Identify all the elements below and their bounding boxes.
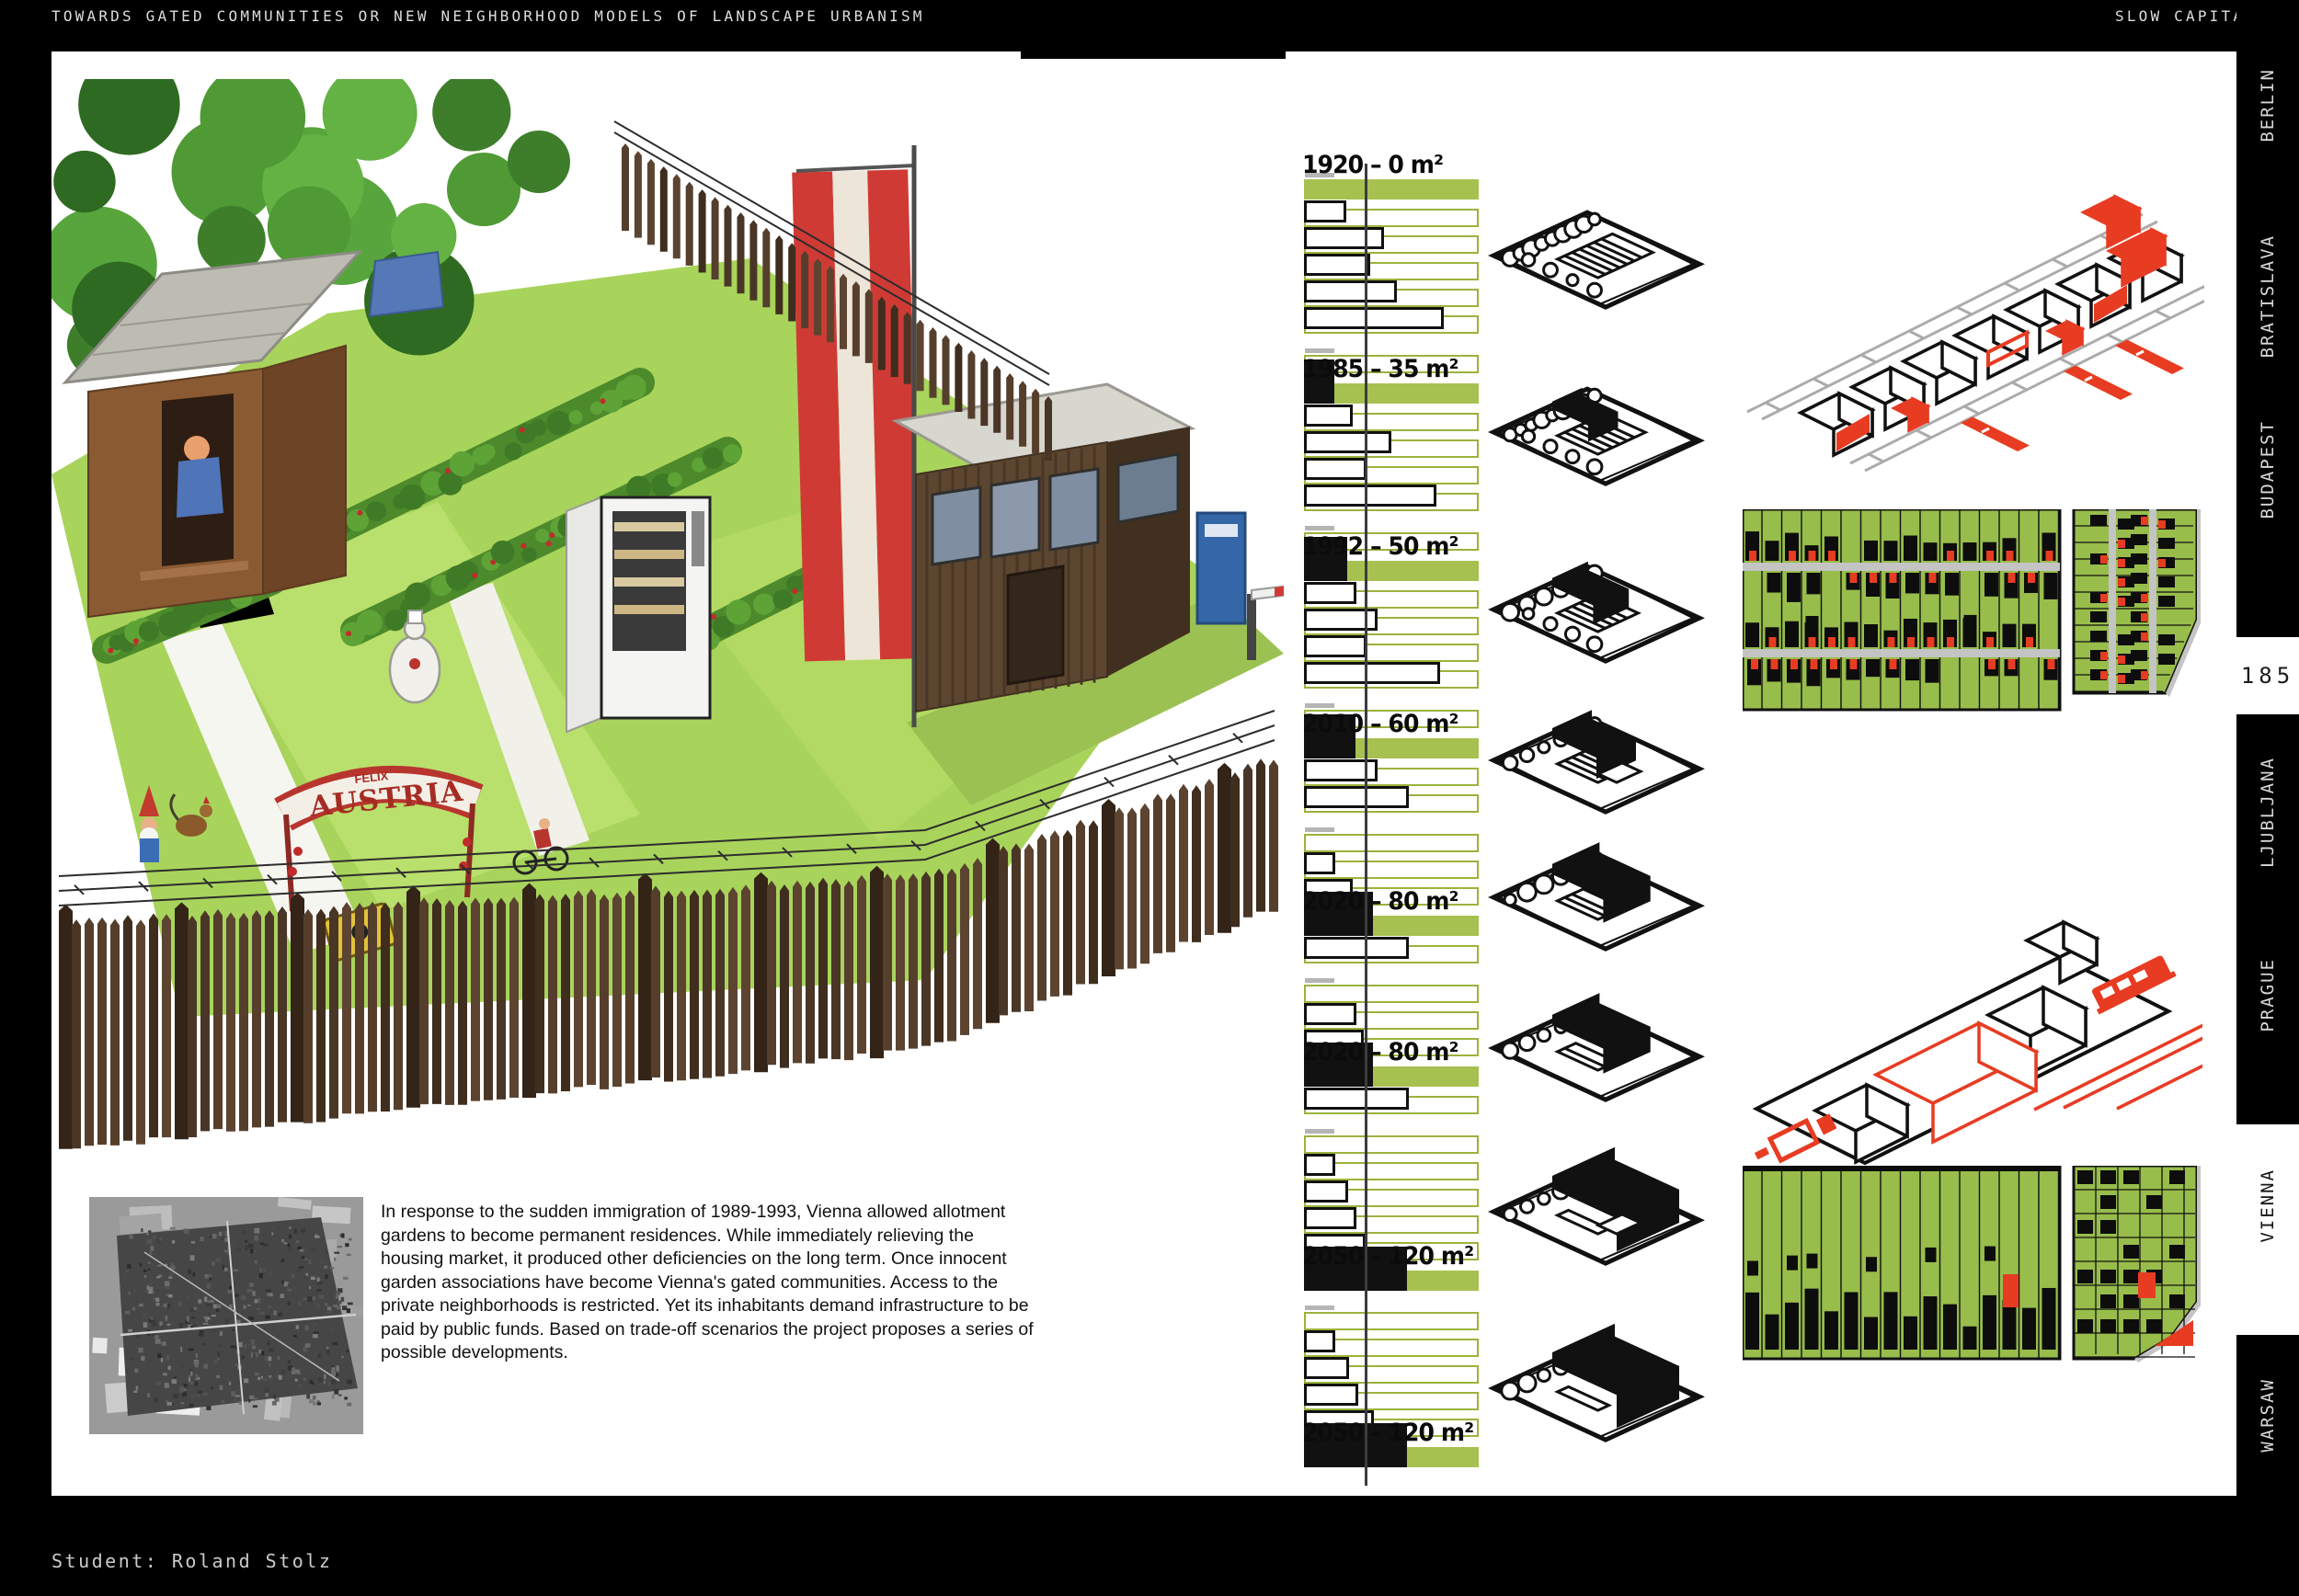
sidebar-city-berlin: BERLIN bbox=[2258, 68, 2278, 142]
sidebar-city-ljubljana: LJUBLJANA bbox=[2258, 757, 2278, 868]
milestone-label: 2050 – 120 m² bbox=[1302, 1419, 1473, 1447]
row-year-range-label bbox=[1305, 1305, 1334, 1310]
timeline-milestone-2020: 2020 – 80 m² bbox=[1304, 909, 1479, 936]
timeline-row bbox=[1304, 256, 1479, 280]
row-year-range-label bbox=[1305, 1129, 1334, 1134]
timeline-row bbox=[1304, 1089, 1479, 1114]
sidebar-city-warsaw: WARSAW bbox=[2258, 1378, 2278, 1453]
timeline-row bbox=[1304, 1385, 1479, 1410]
timeline-row bbox=[1304, 1209, 1479, 1234]
milestone-label: 2010 – 60 m² bbox=[1302, 710, 1458, 738]
austrian-flag-icon bbox=[792, 169, 921, 661]
milestone-label: 2050 – 120 m² bbox=[1302, 1242, 1473, 1271]
timeline-row bbox=[1304, 486, 1479, 511]
row-year-range-label bbox=[1305, 978, 1334, 983]
timeline-row bbox=[1304, 584, 1479, 609]
plot-evolution-thumbnails bbox=[1482, 169, 1723, 1484]
timeline-milestone-2010: 2010 – 60 m² bbox=[1304, 732, 1479, 758]
timeline-milestone-2050: 2050 – 120 m² bbox=[1304, 1441, 1479, 1467]
timeline-row bbox=[1304, 788, 1479, 813]
timeline-row bbox=[1304, 1332, 1479, 1357]
timeline-row bbox=[1304, 978, 1479, 1003]
plot-icon-plot-with-larger-house bbox=[1482, 815, 1717, 975]
student-credit: Student: Roland Stolz bbox=[51, 1550, 332, 1572]
timeline-row bbox=[1304, 1305, 1479, 1330]
timeline-row bbox=[1304, 1182, 1479, 1207]
timeline-row bbox=[1304, 406, 1479, 431]
timeline-group-2020: 2020 – 80 m² bbox=[1304, 978, 1479, 1114]
parcel-map-drawing bbox=[1743, 509, 2201, 712]
top-black-tab bbox=[1021, 51, 1286, 59]
timeline-group-2020: 2020 – 80 m² bbox=[1304, 827, 1479, 963]
timeline-row bbox=[1304, 460, 1479, 484]
timeline-row bbox=[1304, 1005, 1479, 1030]
milestone-label: 1985 – 35 m² bbox=[1302, 355, 1458, 383]
plot-icon-plot-with-shed bbox=[1482, 349, 1717, 510]
allotment-garden-cartoon: FELIX AUSTRIA bbox=[51, 79, 1284, 1228]
aerial-photo bbox=[89, 1197, 363, 1434]
timeline-group-1920: 1920 – 0 m² bbox=[1304, 173, 1479, 334]
project-description: In response to the sudden immigration of… bbox=[381, 1201, 1037, 1365]
timeline-row bbox=[1304, 202, 1479, 227]
timeline-row bbox=[1304, 610, 1479, 635]
page-number: 185 bbox=[2236, 663, 2299, 689]
timeline-row bbox=[1304, 309, 1479, 334]
milestone-label: 2020 – 80 m² bbox=[1302, 1038, 1458, 1066]
timeline-milestone-2050: 2050 – 120 m² bbox=[1304, 1264, 1479, 1291]
sidebar-city-prague: PRAGUE bbox=[2258, 958, 2278, 1032]
timeline-milestone-2020: 2020 – 80 m² bbox=[1304, 1060, 1479, 1087]
plot-icon-plot-with-small-house bbox=[1482, 527, 1717, 688]
page-header-title: TOWARDS GATED COMMUNITIES OR NEW NEIGHBO… bbox=[51, 7, 925, 25]
city-index-sidebar: 185 BERLINBRATISLAVABUDAPESTLJUBLJANAPRA… bbox=[2236, 0, 2299, 1596]
sidebar-city-bratislava: BRATISLAVA bbox=[2258, 234, 2278, 358]
clothesline-jacket bbox=[370, 252, 443, 316]
timeline-guide-line bbox=[1365, 164, 1367, 1486]
plot-icon-plot-with-row-house bbox=[1482, 965, 1717, 1126]
isometric-block-red-tram-drawing bbox=[1745, 908, 2202, 1177]
dwelling-size-timeline-chart: 1920 – 0 m²1985 – 35 m²1992 – 50 m²2010 … bbox=[1304, 169, 1479, 1482]
timeline-row bbox=[1304, 761, 1479, 786]
timeline-milestone-1992: 1992 – 50 m² bbox=[1304, 554, 1479, 581]
timeline-group-1985: 1985 – 35 m² bbox=[1304, 348, 1479, 511]
milestone-label: 1920 – 0 m² bbox=[1302, 151, 1443, 179]
row-year-range-label bbox=[1305, 348, 1334, 353]
page-header-project: SLOW CAPITAL bbox=[2115, 7, 2257, 25]
page-canvas: FELIX AUSTRIA bbox=[51, 51, 2236, 1496]
timeline-row bbox=[1304, 854, 1479, 879]
timeline-row bbox=[1304, 433, 1479, 458]
timeline-group-2010: 2010 – 60 m² bbox=[1304, 703, 1479, 813]
milestone-label: 2020 – 80 m² bbox=[1302, 887, 1458, 916]
sidebar-city-budapest: BUDAPEST bbox=[2258, 420, 2278, 519]
milestone-label: 1992 – 50 m² bbox=[1302, 532, 1458, 561]
timeline-row bbox=[1304, 1129, 1479, 1154]
timeline-row bbox=[1304, 1156, 1479, 1180]
plot-icon-plot-with-large-house bbox=[1482, 1305, 1717, 1466]
row-year-range-label bbox=[1305, 526, 1334, 530]
isometric-street-row-drawing bbox=[1740, 136, 2204, 515]
timeline-group-1992: 1992 – 50 m² bbox=[1304, 526, 1479, 689]
timeline-row bbox=[1304, 664, 1479, 689]
timeline-row bbox=[1304, 229, 1479, 254]
vending-machine-icon bbox=[566, 497, 710, 732]
timeline-row bbox=[1304, 939, 1479, 963]
parcel-map-drawing-2 bbox=[1743, 1166, 2201, 1381]
plot-icon-plot-with-villa-pool bbox=[1482, 1129, 1717, 1290]
timeline-row bbox=[1304, 282, 1479, 307]
timeline-row bbox=[1304, 827, 1479, 852]
timeline-group-2050: 2050 – 120 m² bbox=[1304, 1129, 1479, 1291]
row-year-range-label bbox=[1305, 703, 1334, 708]
book-page-spread: { "header": { "left_title": "TOWARDS GAT… bbox=[0, 0, 2299, 1596]
timeline-milestone-1985: 1985 – 35 m² bbox=[1304, 377, 1479, 404]
timeline-milestone-1920: 1920 – 0 m² bbox=[1304, 173, 1479, 199]
row-year-range-label bbox=[1305, 827, 1334, 832]
sidebar-city-vienna: VIENNA bbox=[2258, 1168, 2278, 1243]
timeline-group-2050: 2050 – 120 m² bbox=[1304, 1305, 1479, 1467]
timeline-row bbox=[1304, 637, 1479, 662]
timeline-row bbox=[1304, 1359, 1479, 1384]
page-number-box: 185 bbox=[2236, 637, 2299, 714]
plot-icon-allotment-garden-plot bbox=[1482, 173, 1717, 334]
